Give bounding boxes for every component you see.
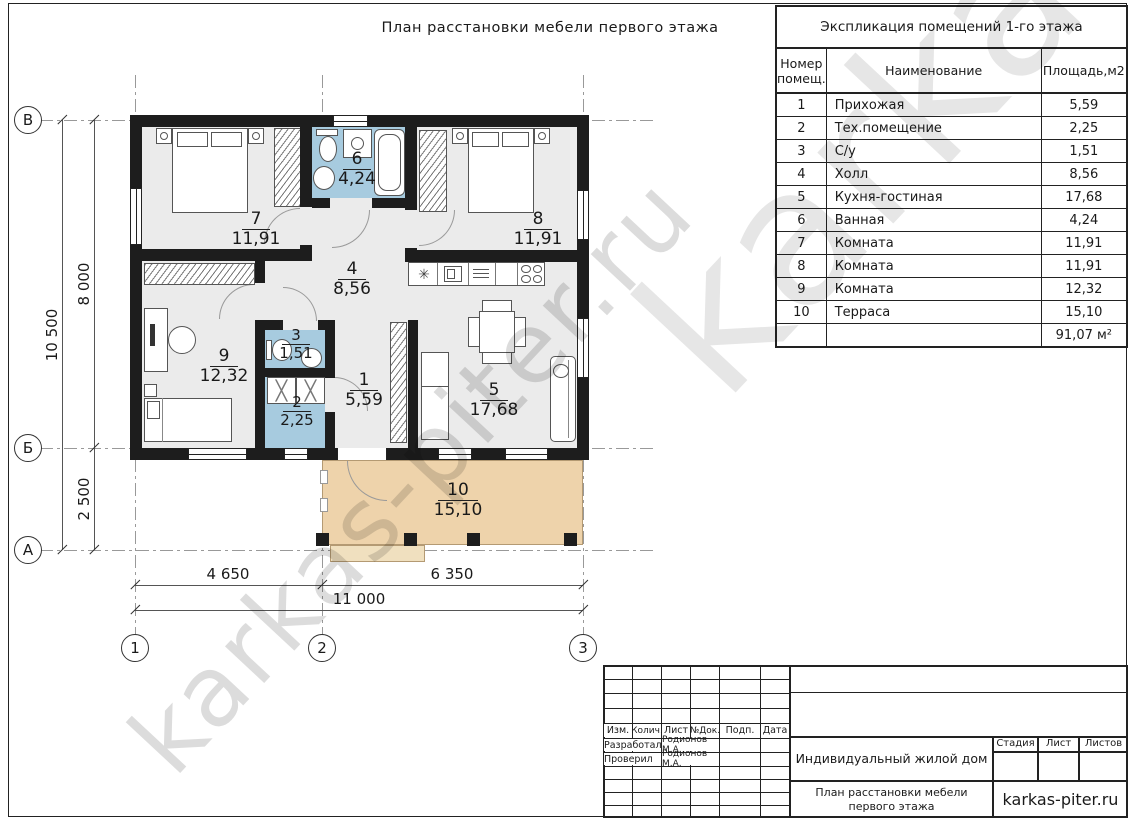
counter-divider (517, 263, 518, 285)
room-number: 5 (480, 381, 509, 401)
stamp-doc-code-cell (790, 665, 1128, 737)
terrace-post (316, 533, 329, 546)
room-area: 17,68 (470, 400, 519, 420)
burner-icon (521, 265, 531, 273)
terrace-post (467, 533, 480, 546)
col-header-area: Площадь,м2 (1041, 48, 1127, 93)
wall (130, 115, 142, 460)
monitor-icon (150, 324, 155, 346)
window (577, 318, 589, 378)
room-area: 2,25 (280, 411, 313, 429)
room-label-8: 8 11,91 (493, 210, 583, 249)
stamp-line (603, 805, 790, 806)
stamp-project-cell: Индивидуальный жилой дом (790, 737, 993, 781)
lamp-icon (252, 132, 260, 140)
stamp-line (760, 665, 761, 818)
schedule-table: Экспликация помещений 1-го этажа Номер п… (775, 5, 1128, 348)
pillow (147, 401, 160, 419)
stamp-line (603, 779, 790, 780)
stamp-line (603, 693, 790, 694)
axis-marker-1: 1 (121, 634, 149, 662)
room-number: 4 (338, 260, 367, 280)
dim-line (135, 585, 583, 586)
room-area: 12,32 (200, 366, 249, 386)
terrace-post (564, 533, 577, 546)
stamp-col-kol: Колич. (633, 724, 661, 737)
axis-marker-v: В (14, 106, 42, 134)
burner-icon (533, 265, 543, 273)
room-area: 11,91 (514, 229, 563, 249)
axis-marker-2: 2 (308, 634, 336, 662)
fridge-divider (422, 386, 448, 387)
room-label-10: 10 15,10 (413, 481, 503, 520)
nightstand (144, 384, 157, 397)
stamp-sheets-value (1079, 752, 1128, 781)
burner-icon (533, 275, 543, 283)
chair (514, 317, 526, 347)
room-label-6: 6 4,24 (312, 150, 402, 189)
window (333, 115, 368, 127)
room-area: 5,59 (345, 390, 383, 410)
stamp-line (603, 679, 790, 680)
stamp-col-data: Дата (761, 724, 789, 737)
wall (405, 127, 417, 210)
room-number: 1 (350, 371, 379, 391)
wall (405, 248, 417, 262)
stamp-line (719, 665, 720, 818)
burner-icon (521, 275, 531, 283)
stamp-brand-cell: karkas-piter.ru (993, 781, 1128, 818)
room-number: 7 (242, 210, 271, 230)
dim-line (135, 610, 583, 611)
schedule-title: Экспликация помещений 1-го этажа (776, 6, 1127, 48)
stamp-sheets-header: Листов (1079, 737, 1128, 752)
dim-bottom-left: 4 650 (188, 565, 268, 583)
schedule-row: 9Комната12,32 (776, 278, 1127, 301)
axis-marker-3: 3 (569, 634, 597, 662)
pillow (472, 132, 499, 147)
counter-divider (437, 263, 438, 285)
schedule-row: 3С/у1,51 (776, 140, 1127, 163)
room-area: 8,56 (333, 279, 371, 299)
kitchen-sink-icon: ✳ (412, 265, 436, 284)
oven-inner (447, 269, 455, 279)
schedule-row: 2Тех.помещение2,25 (776, 117, 1127, 140)
room-area: 11,91 (232, 229, 281, 249)
sofa-cushion (553, 364, 569, 378)
terrace-rail-gap (320, 470, 328, 484)
room-label-5: 5 17,68 (449, 381, 539, 420)
terrace-step (330, 545, 425, 562)
chair (482, 352, 512, 364)
wardrobe (274, 128, 302, 207)
toilet-tank (316, 129, 338, 136)
dim-left-total: 10 500 (43, 305, 61, 365)
room-label-7: 7 11,91 (211, 210, 301, 249)
fridge (421, 352, 449, 440)
counter-divider (495, 263, 496, 285)
room-number: 3 (282, 327, 310, 345)
schedule-total-row: 91,07 м² (776, 324, 1127, 348)
room-number: 2 (283, 394, 311, 412)
wall (577, 115, 589, 460)
room-area: 4,24 (338, 169, 376, 189)
wardrobe (144, 263, 255, 285)
window (188, 448, 247, 460)
schedule-header-row: Номер помещ. Наименование Площадь,м2 (776, 48, 1127, 93)
dishwasher-icon (473, 269, 489, 280)
stamp-line (790, 692, 1128, 693)
col-header-num: Номер помещ. (776, 48, 826, 93)
stamp-line (603, 708, 790, 709)
room-area: 15,10 (434, 500, 483, 520)
window (130, 188, 142, 245)
stamp-developed-label: Разработал (604, 739, 661, 751)
dim-bottom-right: 6 350 (412, 565, 492, 583)
schedule-row: 10Терраса15,10 (776, 301, 1127, 324)
schedule-row: 5Кухня-гостиная17,68 (776, 186, 1127, 209)
wall (417, 250, 589, 262)
wall (130, 249, 305, 261)
window (284, 448, 308, 460)
room-number: 10 (438, 481, 478, 501)
room-number: 9 (210, 347, 239, 367)
stamp-col-izm: Изм. (604, 724, 632, 737)
terrace-post (404, 533, 417, 546)
room-area: 1,51 (279, 344, 312, 362)
stamp-checked-name: Родионов М.А. (662, 753, 719, 765)
col-header-name: Наименование (826, 48, 1041, 93)
desk (144, 308, 168, 372)
stamp-sheet-header: Лист (1038, 737, 1079, 752)
axis-marker-a: А (14, 536, 42, 564)
stamp-checked-label: Проверил (604, 753, 661, 765)
terrace-rail-gap (320, 498, 328, 512)
schedule-row: 1Прихожая5,59 (776, 93, 1127, 117)
dim-left-upper: 8 000 (75, 254, 93, 314)
stamp-stage-header: Стадия (993, 737, 1038, 752)
dim-left-lower: 2 500 (75, 469, 93, 529)
stamp-sheet-value (1038, 752, 1079, 781)
bed-line (162, 398, 163, 442)
lamp-icon (160, 132, 168, 140)
wall (408, 320, 418, 448)
stamp-stage-value (993, 752, 1038, 781)
schedule-total: 91,07 м² (1041, 324, 1127, 348)
wall (312, 198, 330, 208)
dim-line (94, 120, 95, 550)
schedule-row: 6Ванная4,24 (776, 209, 1127, 232)
schedule-row: 8Комната11,91 (776, 255, 1127, 278)
window (505, 448, 548, 460)
schedule-row: 7Комната11,91 (776, 232, 1127, 255)
pillow (211, 132, 242, 147)
stamp-line (603, 792, 790, 793)
room-label-4: 4 8,56 (307, 260, 397, 299)
window (438, 448, 472, 460)
stamp-col-podp: Подп. (720, 724, 760, 737)
drawing-sheet: karkas-piter.ru karkas-piter.ru План рас… (0, 0, 1135, 823)
room-label-1: 1 5,59 (319, 371, 409, 410)
dim-line (62, 120, 63, 550)
schedule-row: 4Холл8,56 (776, 163, 1127, 186)
lamp-icon (456, 132, 464, 140)
wall (255, 249, 265, 283)
room-number: 8 (524, 210, 553, 230)
plan-title: План расстановки мебели первого этажа (300, 20, 800, 36)
wall (300, 127, 312, 207)
room-number: 6 (343, 150, 372, 170)
cooktop-icon (520, 264, 543, 284)
pillow (177, 132, 208, 147)
entrance-opening (337, 448, 387, 460)
pillow (502, 132, 529, 147)
axis-marker-b: Б (14, 434, 42, 462)
room-label-3: 3 1,51 (251, 327, 341, 362)
wall (372, 198, 405, 208)
dining-table (479, 311, 515, 353)
lamp-icon (538, 132, 546, 140)
counter-divider (468, 263, 469, 285)
stamp-doc-title-cell: План расстановки мебели первого этажа (790, 781, 993, 818)
wardrobe (419, 130, 447, 212)
dim-bottom-total: 11 000 (319, 590, 399, 608)
